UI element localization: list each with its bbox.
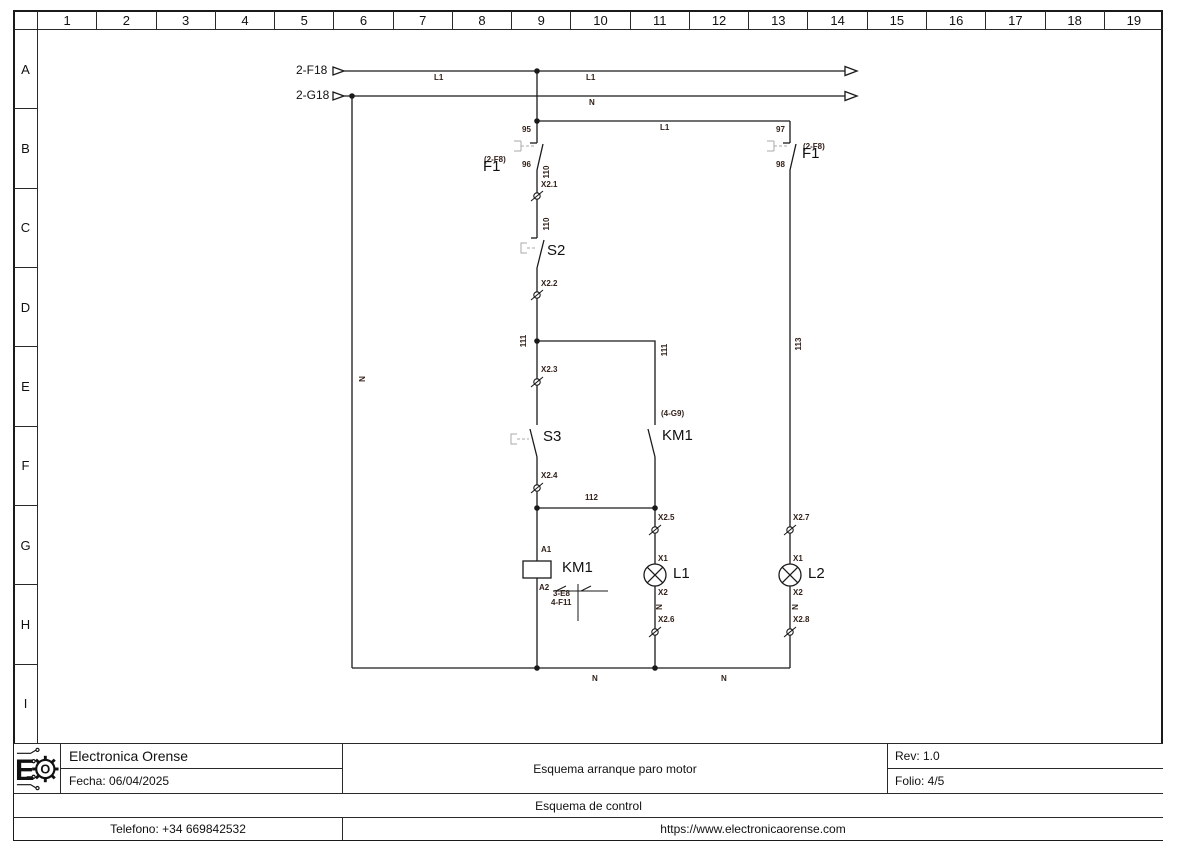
folio-field: Folio: 4/5	[888, 768, 1163, 793]
svg-text:O: O	[40, 761, 50, 776]
electronica-orense-logo-icon: E O	[14, 744, 60, 794]
date-field: Fecha: 06/04/2025	[61, 768, 343, 793]
junction-dots	[349, 68, 658, 671]
arrow-right-icon	[845, 92, 857, 101]
km1-coil	[523, 561, 551, 578]
date-text: Fecha: 06/04/2025	[69, 774, 169, 788]
phone-field: Telefono: +34 669842532	[14, 817, 343, 840]
f1-left-nc-contact	[514, 141, 543, 170]
drawing-subtitle: Esquema de control	[14, 793, 1163, 817]
schematic-page: 12345678910111213141516171819 ABCDEFGHI	[0, 0, 1185, 855]
s3-start-button-contact	[511, 429, 537, 457]
f1-right-nc-contact	[767, 141, 796, 170]
revision-field: Rev: 1.0	[888, 743, 1163, 768]
circuit-diagram	[0, 0, 1185, 855]
company-name-text: Electronica Orense	[69, 748, 188, 764]
website-field: https://www.electronicaorense.com	[343, 817, 1163, 840]
drawing-title-text: Esquema arranque paro motor	[533, 762, 696, 776]
km1-no-contact	[648, 429, 655, 457]
website-text: https://www.electronicaorense.com	[660, 822, 845, 836]
lamp-l2	[779, 564, 801, 586]
revision-text: Rev: 1.0	[895, 749, 940, 763]
s2-stop-button-contact	[521, 238, 544, 268]
company-name: Electronica Orense	[61, 743, 343, 768]
bus-l1-wire	[333, 67, 857, 76]
drawing-title: Esquema arranque paro motor	[343, 743, 888, 793]
arrow-right-icon	[845, 67, 857, 76]
wire-branch-111	[537, 341, 655, 425]
drawing-subtitle-text: Esquema de control	[535, 799, 642, 813]
lamp-l1	[644, 564, 666, 586]
folio-text: Folio: 4/5	[895, 774, 944, 788]
company-logo: E O	[14, 743, 61, 793]
km1-contact-mirror	[553, 584, 608, 621]
svg-text:E: E	[15, 753, 35, 786]
bus-n-wire	[333, 92, 857, 101]
phone-text: Telefono: +34 669842532	[110, 822, 246, 836]
